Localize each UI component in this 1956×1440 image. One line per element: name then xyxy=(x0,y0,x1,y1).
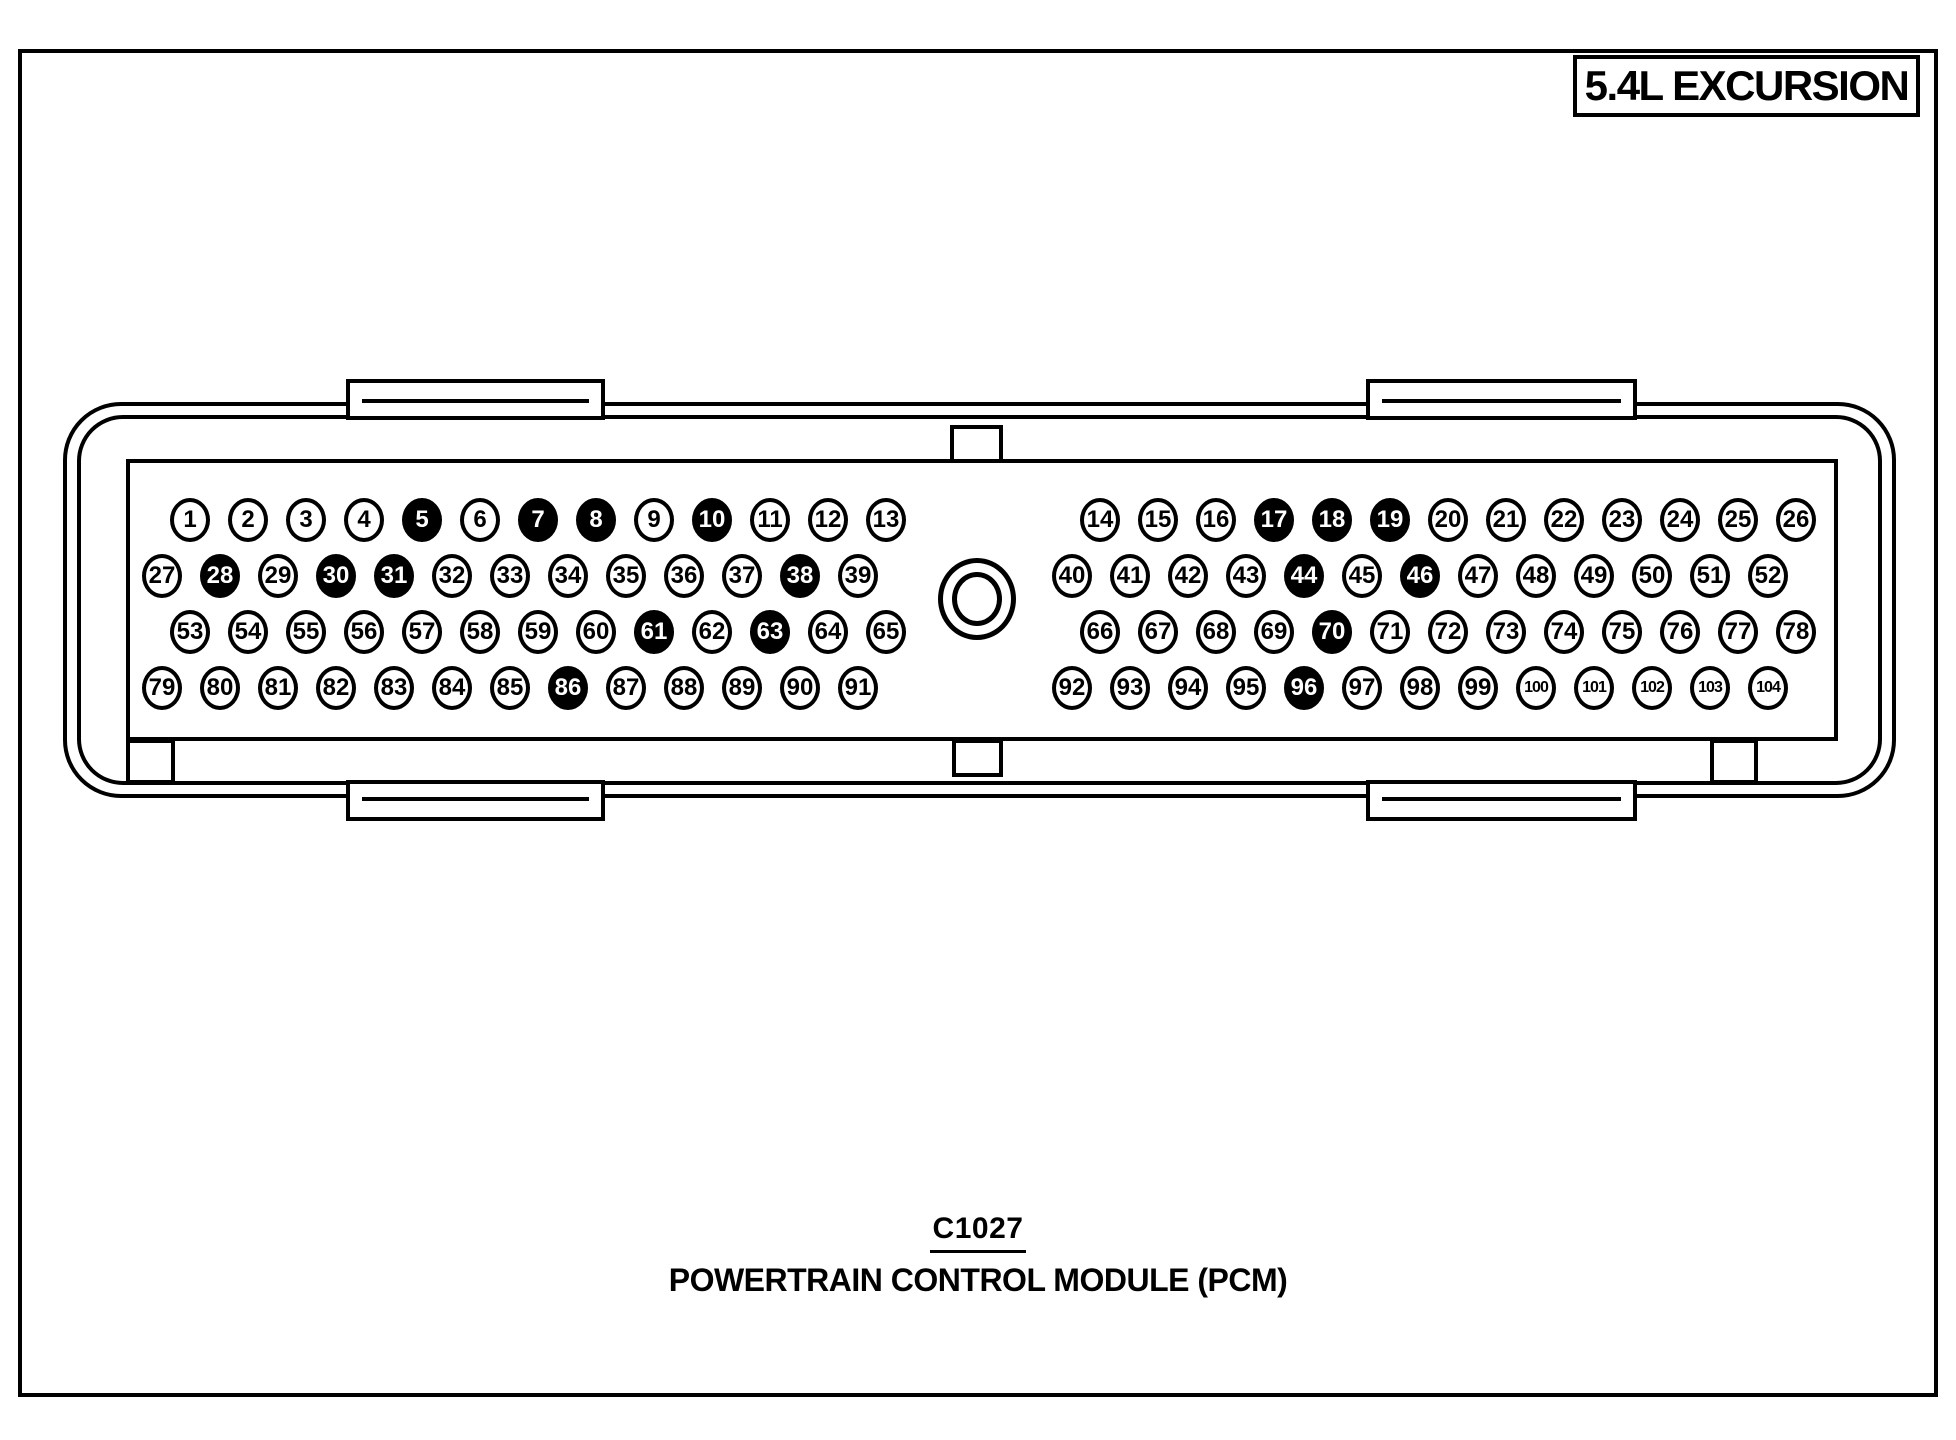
pin-31: 31 xyxy=(374,554,414,598)
pin-82: 82 xyxy=(316,666,356,710)
pin-104: 104 xyxy=(1748,666,1788,710)
pin-6: 6 xyxy=(460,498,500,542)
pin-83: 83 xyxy=(374,666,414,710)
pin-86: 86 xyxy=(548,666,588,710)
pin-39: 39 xyxy=(838,554,878,598)
pin-27: 27 xyxy=(142,554,182,598)
pin-79: 79 xyxy=(142,666,182,710)
pin-77: 77 xyxy=(1718,610,1758,654)
pin-22: 22 xyxy=(1544,498,1584,542)
pin-28: 28 xyxy=(200,554,240,598)
pin-20: 20 xyxy=(1428,498,1468,542)
pin-11: 11 xyxy=(750,498,790,542)
pin-54: 54 xyxy=(228,610,268,654)
pin-24: 24 xyxy=(1660,498,1700,542)
pin-44: 44 xyxy=(1284,554,1324,598)
pin-70: 70 xyxy=(1312,610,1352,654)
title-box: 5.4L EXCURSION xyxy=(1573,55,1920,117)
pin-60: 60 xyxy=(576,610,616,654)
pin-64: 64 xyxy=(808,610,848,654)
pin-21: 21 xyxy=(1486,498,1526,542)
pin-35: 35 xyxy=(606,554,646,598)
pin-17: 17 xyxy=(1254,498,1294,542)
pin-98: 98 xyxy=(1400,666,1440,710)
pin-88: 88 xyxy=(664,666,704,710)
pin-4: 4 xyxy=(344,498,384,542)
pin-18: 18 xyxy=(1312,498,1352,542)
pin-57: 57 xyxy=(402,610,442,654)
pin-43: 43 xyxy=(1226,554,1266,598)
pin-37: 37 xyxy=(722,554,762,598)
pin-67: 67 xyxy=(1138,610,1178,654)
pin-91: 91 xyxy=(838,666,878,710)
pin-76: 76 xyxy=(1660,610,1700,654)
pin-80: 80 xyxy=(200,666,240,710)
pin-14: 14 xyxy=(1080,498,1120,542)
pin-87: 87 xyxy=(606,666,646,710)
pin-93: 93 xyxy=(1110,666,1150,710)
pin-100: 100 xyxy=(1516,666,1556,710)
pin-66: 66 xyxy=(1080,610,1120,654)
pin-51: 51 xyxy=(1690,554,1730,598)
pin-45: 45 xyxy=(1342,554,1382,598)
pin-15: 15 xyxy=(1138,498,1178,542)
pin-72: 72 xyxy=(1428,610,1468,654)
pin-78: 78 xyxy=(1776,610,1816,654)
pin-99: 99 xyxy=(1458,666,1498,710)
pin-103: 103 xyxy=(1690,666,1730,710)
pin-55: 55 xyxy=(286,610,326,654)
pin-75: 75 xyxy=(1602,610,1642,654)
pin-49: 49 xyxy=(1574,554,1614,598)
pin-53: 53 xyxy=(170,610,210,654)
pin-23: 23 xyxy=(1602,498,1642,542)
pin-50: 50 xyxy=(1632,554,1672,598)
title-label: 5.4L EXCURSION xyxy=(1585,62,1909,110)
pin-32: 32 xyxy=(432,554,472,598)
pin-56: 56 xyxy=(344,610,384,654)
pin-97: 97 xyxy=(1342,666,1382,710)
pin-65: 65 xyxy=(866,610,906,654)
pin-25: 25 xyxy=(1718,498,1758,542)
pin-71: 71 xyxy=(1370,610,1410,654)
pin-85: 85 xyxy=(490,666,530,710)
pin-2: 2 xyxy=(228,498,268,542)
pin-59: 59 xyxy=(518,610,558,654)
pin-1: 1 xyxy=(170,498,210,542)
pin-42: 42 xyxy=(1168,554,1208,598)
diagram-page: 5.4L EXCURSION 1234567891011121314151617… xyxy=(0,0,1956,1440)
pin-8: 8 xyxy=(576,498,616,542)
pin-62: 62 xyxy=(692,610,732,654)
pin-94: 94 xyxy=(1168,666,1208,710)
pin-61: 61 xyxy=(634,610,674,654)
pin-81: 81 xyxy=(258,666,298,710)
pin-19: 19 xyxy=(1370,498,1410,542)
pin-101: 101 xyxy=(1574,666,1614,710)
pin-41: 41 xyxy=(1110,554,1150,598)
pin-96: 96 xyxy=(1284,666,1324,710)
pin-12: 12 xyxy=(808,498,848,542)
pin-30: 30 xyxy=(316,554,356,598)
pin-63: 63 xyxy=(750,610,790,654)
pin-73: 73 xyxy=(1486,610,1526,654)
pin-10: 10 xyxy=(692,498,732,542)
pin-34: 34 xyxy=(548,554,588,598)
pin-7: 7 xyxy=(518,498,558,542)
pin-29: 29 xyxy=(258,554,298,598)
pin-26: 26 xyxy=(1776,498,1816,542)
pin-52: 52 xyxy=(1748,554,1788,598)
pin-46: 46 xyxy=(1400,554,1440,598)
pin-48: 48 xyxy=(1516,554,1556,598)
pin-58: 58 xyxy=(460,610,500,654)
pin-95: 95 xyxy=(1226,666,1266,710)
pin-90: 90 xyxy=(780,666,820,710)
pin-5: 5 xyxy=(402,498,442,542)
pin-33: 33 xyxy=(490,554,530,598)
pin-74: 74 xyxy=(1544,610,1584,654)
pin-3: 3 xyxy=(286,498,326,542)
pin-40: 40 xyxy=(1052,554,1092,598)
pin-47: 47 xyxy=(1458,554,1498,598)
pins-layer: 1234567891011121314151617181920212223242… xyxy=(0,0,1956,1440)
pin-9: 9 xyxy=(634,498,674,542)
pin-89: 89 xyxy=(722,666,762,710)
pin-38: 38 xyxy=(780,554,820,598)
pin-16: 16 xyxy=(1196,498,1236,542)
pin-102: 102 xyxy=(1632,666,1672,710)
pin-69: 69 xyxy=(1254,610,1294,654)
pin-36: 36 xyxy=(664,554,704,598)
pin-84: 84 xyxy=(432,666,472,710)
pin-68: 68 xyxy=(1196,610,1236,654)
pin-13: 13 xyxy=(866,498,906,542)
pin-92: 92 xyxy=(1052,666,1092,710)
